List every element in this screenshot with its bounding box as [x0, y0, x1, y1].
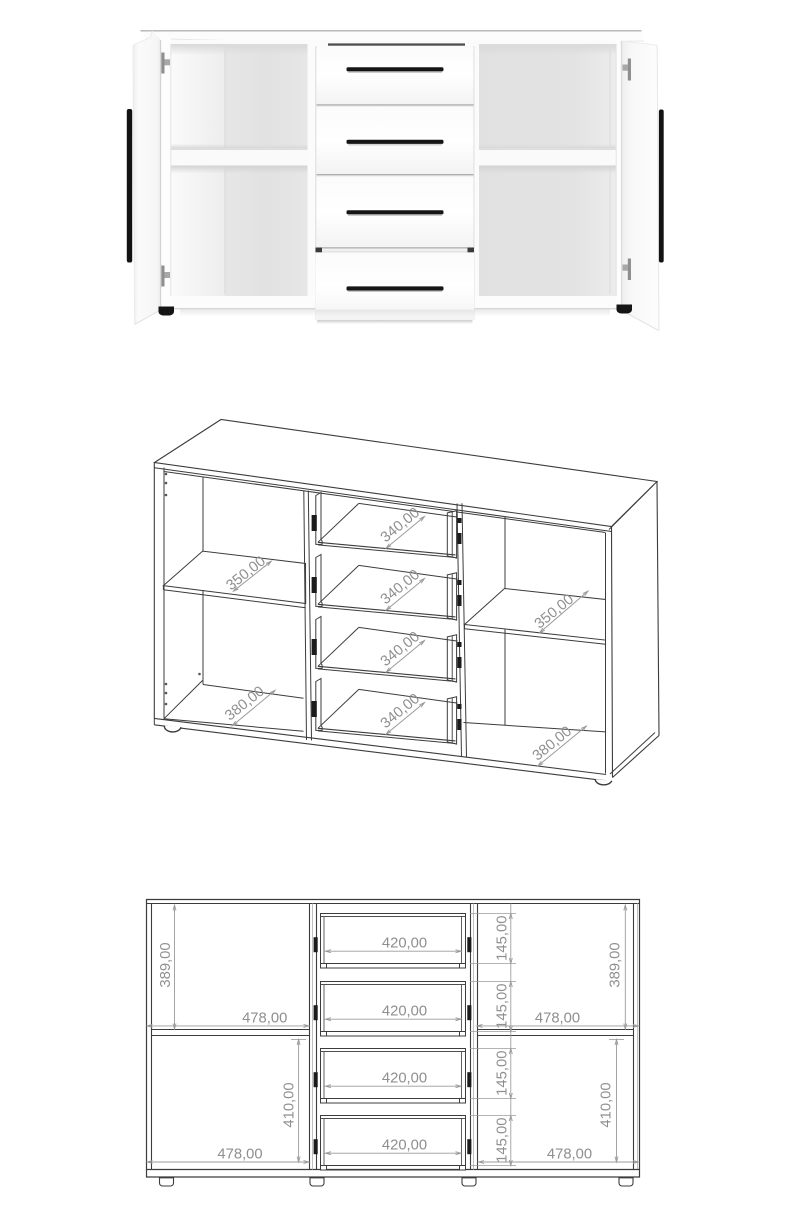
- svg-text:340,00: 340,00: [378, 505, 423, 546]
- svg-text:389,00: 389,00: [158, 942, 174, 987]
- svg-text:389,00: 389,00: [608, 942, 624, 987]
- svg-text:340,00: 340,00: [378, 691, 423, 732]
- svg-text:478,00: 478,00: [242, 1010, 287, 1026]
- svg-text:410,00: 410,00: [599, 1082, 615, 1127]
- svg-text:420,00: 420,00: [382, 1004, 427, 1020]
- svg-text:478,00: 478,00: [535, 1010, 580, 1026]
- svg-text:478,00: 478,00: [217, 1147, 262, 1163]
- svg-text:340,00: 340,00: [378, 567, 423, 608]
- svg-text:420,00: 420,00: [382, 936, 427, 952]
- svg-text:420,00: 420,00: [382, 1138, 427, 1154]
- svg-text:380,00: 380,00: [530, 723, 575, 764]
- svg-text:410,00: 410,00: [282, 1082, 298, 1127]
- svg-text:145,00: 145,00: [495, 984, 511, 1029]
- svg-text:420,00: 420,00: [382, 1071, 427, 1087]
- svg-text:145,00: 145,00: [495, 1051, 511, 1096]
- svg-text:380,00: 380,00: [222, 684, 267, 725]
- svg-text:145,00: 145,00: [495, 916, 511, 961]
- svg-text:145,00: 145,00: [495, 1118, 511, 1163]
- svg-text:478,00: 478,00: [547, 1147, 592, 1163]
- svg-text:340,00: 340,00: [378, 629, 423, 670]
